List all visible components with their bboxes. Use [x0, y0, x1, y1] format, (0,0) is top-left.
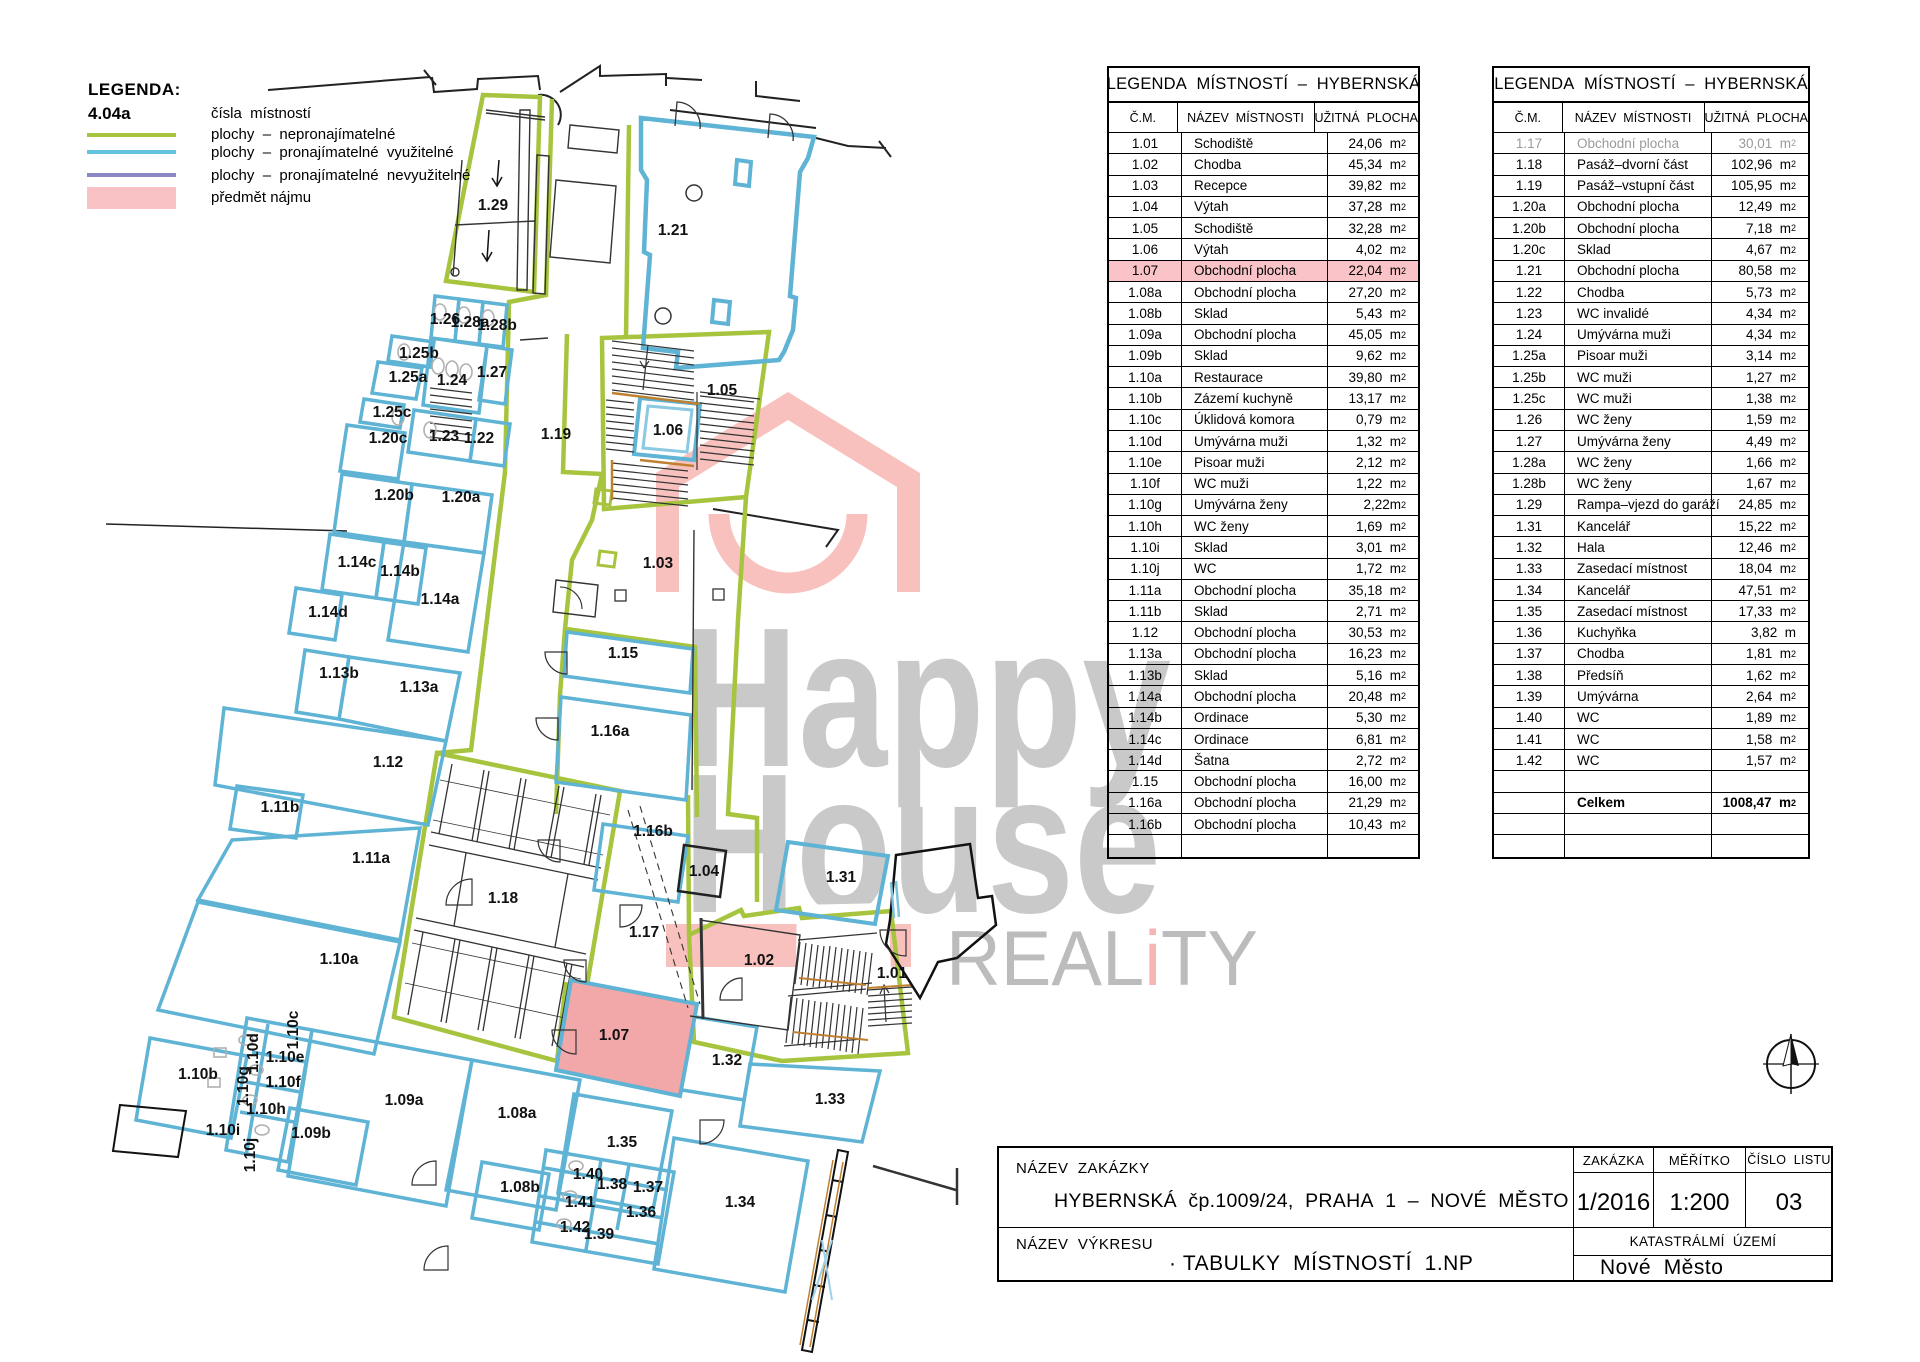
svg-text:1.10j: 1.10j: [242, 1138, 259, 1172]
svg-text:1.22: 1.22: [464, 430, 494, 447]
svg-text:1.20b: 1.20b: [374, 487, 414, 504]
svg-text:1.03: 1.03: [643, 555, 674, 572]
svg-text:1.35: 1.35: [607, 1134, 638, 1151]
svg-text:1.07: 1.07: [599, 1027, 629, 1044]
svg-text:1.10c: 1.10c: [285, 1010, 302, 1049]
svg-text:1.31: 1.31: [826, 869, 857, 886]
svg-text:1.08a: 1.08a: [498, 1105, 537, 1122]
svg-text:1.12: 1.12: [373, 754, 403, 771]
svg-text:1.05: 1.05: [707, 382, 738, 399]
svg-text:1.02: 1.02: [744, 952, 774, 969]
svg-text:1.14b: 1.14b: [380, 563, 420, 580]
svg-text:1.25b: 1.25b: [399, 345, 439, 362]
svg-text:1.09a: 1.09a: [385, 1092, 424, 1109]
svg-text:1.04: 1.04: [689, 863, 720, 880]
svg-text:1.10g: 1.10g: [235, 1066, 252, 1106]
svg-text:1.21: 1.21: [658, 222, 689, 239]
svg-text:1.25c: 1.25c: [373, 404, 412, 421]
svg-text:1.11a: 1.11a: [352, 850, 390, 867]
svg-text:1.19: 1.19: [541, 426, 572, 443]
svg-text:1.20a: 1.20a: [442, 489, 481, 506]
svg-text:1.37: 1.37: [633, 1179, 663, 1196]
svg-text:1.32: 1.32: [712, 1052, 742, 1069]
svg-text:1.38: 1.38: [597, 1176, 628, 1193]
svg-text:1.10f: 1.10f: [265, 1074, 301, 1091]
svg-text:1.36: 1.36: [626, 1204, 657, 1221]
svg-text:1.16a: 1.16a: [591, 723, 630, 740]
svg-text:1.10i: 1.10i: [206, 1122, 240, 1139]
svg-text:1.20c: 1.20c: [369, 430, 408, 447]
svg-text:1.06: 1.06: [653, 422, 684, 439]
svg-text:1.33: 1.33: [815, 1091, 846, 1108]
svg-text:1.25a: 1.25a: [389, 369, 428, 386]
svg-text:1.28b: 1.28b: [477, 317, 517, 334]
svg-text:1.11b: 1.11b: [261, 799, 300, 816]
svg-text:1.14c: 1.14c: [338, 554, 377, 571]
svg-text:1.27: 1.27: [477, 364, 507, 381]
svg-text:1.39: 1.39: [584, 1226, 615, 1243]
svg-text:1.15: 1.15: [608, 645, 639, 662]
svg-text:1.29: 1.29: [478, 197, 509, 214]
svg-text:1.34: 1.34: [725, 1194, 756, 1211]
svg-text:1.16b: 1.16b: [633, 823, 673, 840]
svg-text:1.41: 1.41: [565, 1194, 596, 1211]
svg-text:1.10e: 1.10e: [266, 1049, 305, 1066]
svg-text:1.14d: 1.14d: [308, 604, 348, 621]
svg-text:1.13a: 1.13a: [400, 679, 439, 696]
svg-text:1.08b: 1.08b: [500, 1179, 540, 1196]
svg-text:1.10b: 1.10b: [178, 1066, 218, 1083]
svg-text:1.24: 1.24: [437, 372, 468, 389]
svg-text:1.14a: 1.14a: [421, 591, 460, 608]
svg-text:1.18: 1.18: [488, 890, 519, 907]
svg-text:1.13b: 1.13b: [319, 665, 359, 682]
svg-text:1.23: 1.23: [429, 428, 460, 445]
svg-text:1.10a: 1.10a: [320, 951, 359, 968]
svg-text:1.01: 1.01: [877, 965, 908, 982]
svg-text:1.10h: 1.10h: [246, 1101, 286, 1118]
svg-text:1.09b: 1.09b: [291, 1125, 331, 1142]
svg-text:1.17: 1.17: [629, 924, 659, 941]
